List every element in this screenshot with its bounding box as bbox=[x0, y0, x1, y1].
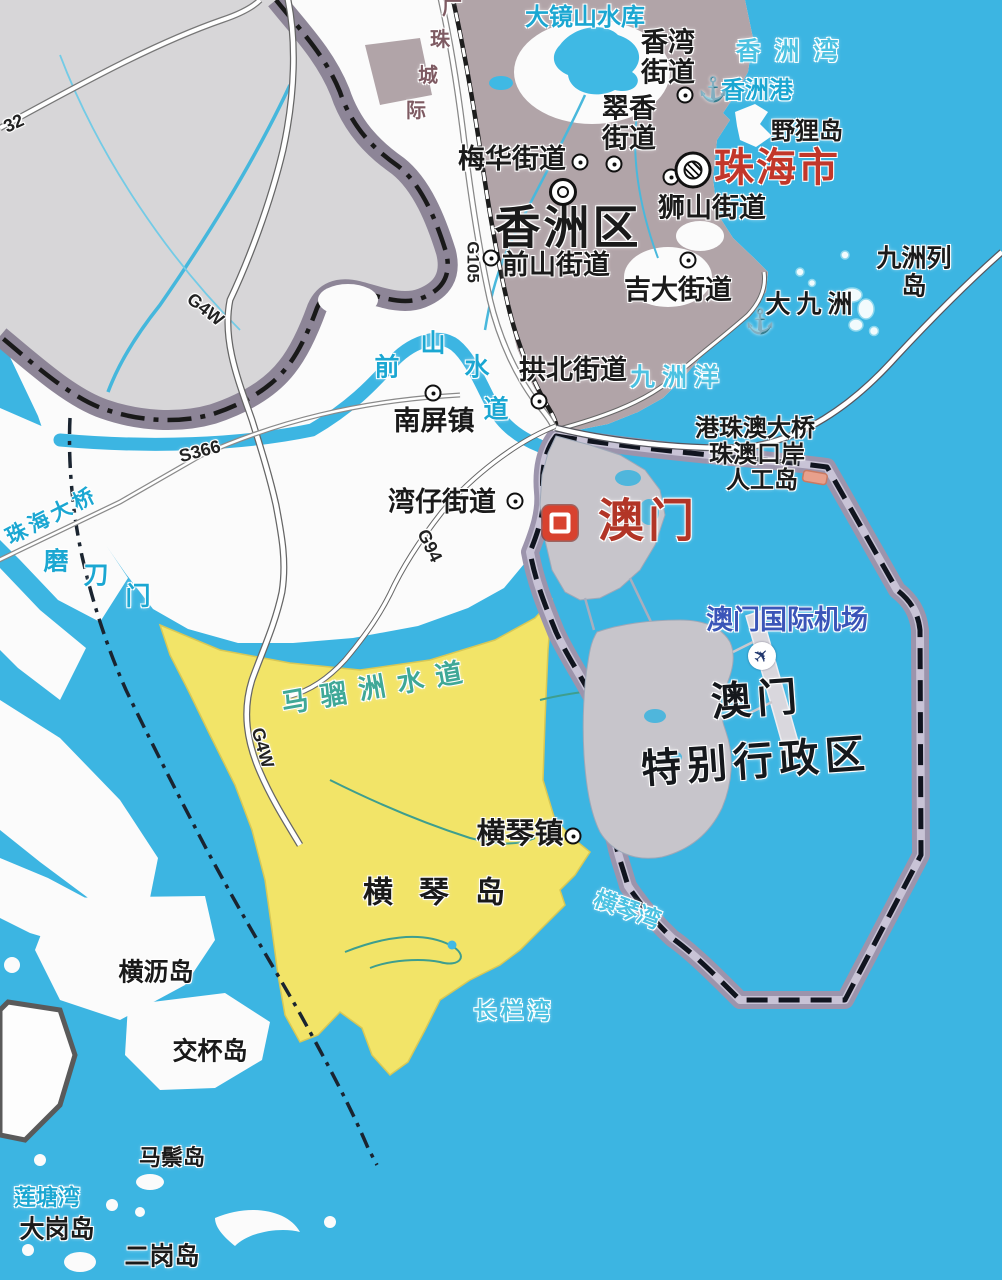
label-xiangzhou-port: 香洲港 bbox=[721, 78, 793, 104]
label-zhuao-port: 珠澳口岸 bbox=[709, 442, 805, 468]
label-artificial-island: 人工岛 bbox=[726, 468, 798, 494]
label-nanping-town: 南屏镇 bbox=[394, 407, 475, 437]
dajiuzhou-islet-4 bbox=[870, 327, 879, 336]
hengqin-pond bbox=[448, 941, 457, 950]
label-road-g105: G105 bbox=[463, 241, 482, 283]
label-zhuhai-city: 珠海市 bbox=[714, 146, 840, 190]
cotai-island bbox=[583, 620, 733, 858]
label-dagang-island: 大岗岛 bbox=[19, 1216, 94, 1244]
label-hengli-island: 横沥岛 bbox=[118, 959, 193, 987]
label-liantang-bay: 莲塘湾 bbox=[14, 1186, 80, 1210]
label-hengqin-town: 横琴镇 bbox=[476, 819, 563, 851]
label-jiuzhou-sea: 九洲洋 bbox=[630, 364, 726, 392]
macau-lake-1 bbox=[615, 470, 641, 486]
mazong-islet-1 bbox=[136, 1174, 164, 1190]
label-macau-airport: 澳门国际机场 bbox=[706, 606, 868, 636]
label-jida-street: 吉大街道 bbox=[624, 276, 732, 306]
anchor-icon-jiuzhou-port: ⚓ bbox=[745, 308, 775, 337]
label-modaomen-char-3: 门 bbox=[125, 583, 150, 611]
label-mazong-island: 马鬃岛 bbox=[139, 1146, 205, 1170]
label-gongbei-street: 拱北街道 bbox=[519, 356, 627, 386]
label-macau: 澳门 bbox=[598, 496, 698, 547]
airport-icon: ✈ bbox=[748, 642, 776, 670]
label-meihua-street: 梅华街道 bbox=[458, 145, 566, 175]
jiuzhou-islet-7 bbox=[841, 251, 849, 259]
macau-capital-icon bbox=[543, 506, 578, 541]
label-shishan-street: 狮山街道 bbox=[658, 194, 766, 224]
label-yeli-island: 野狸岛 bbox=[771, 119, 843, 145]
town-circle-icon-wanzai bbox=[507, 493, 524, 510]
town-circle-icon-hengqin bbox=[565, 828, 582, 845]
label-hzmb-bridge: 港珠澳大桥 bbox=[695, 416, 815, 442]
label-modaomen-char-2: 刀 bbox=[83, 562, 108, 590]
jiuzhou-islet-5 bbox=[796, 268, 804, 276]
anchor-icon-xiangzhou-port: ⚓ bbox=[698, 76, 728, 105]
label-jiaobei-island: 交杯岛 bbox=[172, 1038, 247, 1066]
boundary-white-notch bbox=[318, 284, 378, 316]
mazong-islet-2 bbox=[106, 1199, 118, 1211]
label-xiangwan-street: 香湾 街道 bbox=[641, 28, 695, 87]
label-cuixiang-street: 翠香 街道 bbox=[602, 94, 656, 153]
zhuhai-city-icon bbox=[675, 152, 712, 189]
dajiuzhou-islet-3 bbox=[849, 319, 863, 331]
mazong-islet-3 bbox=[135, 1207, 145, 1217]
map-canvas: 香湾 街道 翠香 街道 梅华街道 狮山街道 香洲区 前山街道 吉大街道 拱北街道… bbox=[0, 0, 1002, 1280]
label-xiangzhou-bay: 香洲湾 bbox=[735, 38, 852, 66]
label-dajingshan-reservoir: 大镜山水库 bbox=[525, 5, 645, 31]
label-dajiuzhou: 大九洲 bbox=[765, 291, 858, 319]
label-wanzai-street: 湾仔街道 bbox=[388, 488, 496, 518]
map-base-layers bbox=[0, 0, 1002, 1280]
label-rail-char-3: 城 bbox=[418, 65, 438, 87]
label-qianshan-waterway-char-1: 前 bbox=[374, 354, 399, 382]
label-ergang-island: 二岗岛 bbox=[124, 1243, 199, 1271]
label-hengqin-island: 横琴岛 bbox=[363, 877, 531, 910]
label-jiuzhou-liedao: 九洲列岛 bbox=[870, 246, 958, 301]
dajiuzhou-islet-2 bbox=[858, 299, 874, 319]
dagang-islet bbox=[64, 1252, 96, 1272]
label-macau-sar-line1: 澳门 bbox=[710, 675, 805, 725]
town-circle-icon-meihua bbox=[572, 154, 589, 171]
label-qianshan-waterway-char-4: 道 bbox=[483, 396, 508, 424]
islet-a bbox=[4, 957, 20, 973]
label-qianshan-waterway-char-2: 山 bbox=[420, 330, 445, 358]
urban-hole-3 bbox=[676, 221, 724, 251]
label-rail-char-1: 广 bbox=[442, 0, 462, 19]
pond-small bbox=[489, 76, 513, 90]
label-rail-char-4: 际 bbox=[406, 100, 426, 122]
town-circle-icon-xiangwan bbox=[677, 87, 694, 104]
label-xiangzhou-district: 香洲区 bbox=[495, 203, 642, 254]
label-qianshan-waterway-char-3: 水 bbox=[464, 354, 489, 382]
district-seat-icon bbox=[549, 178, 577, 206]
town-circle-icon-jida bbox=[680, 252, 697, 269]
cotai-lake-1 bbox=[644, 709, 666, 723]
dagang-islet-2 bbox=[22, 1244, 34, 1256]
plane-glyph: ✈ bbox=[748, 642, 776, 670]
town-circle-icon-qianshan bbox=[483, 250, 500, 267]
label-qianshan-street: 前山街道 bbox=[502, 251, 610, 281]
town-circle-icon-cuixiang bbox=[606, 156, 623, 173]
town-circle-icon-gongbei bbox=[531, 393, 548, 410]
ergang-islet-3 bbox=[324, 1216, 336, 1228]
town-circle-icon-nanping bbox=[425, 385, 442, 402]
label-changlan-bay: 长栏湾 bbox=[474, 998, 555, 1023]
label-modaomen-char-1: 磨 bbox=[43, 548, 68, 576]
islet-b bbox=[34, 1154, 46, 1166]
jiuzhou-islet-6 bbox=[809, 280, 816, 287]
label-rail-char-2: 珠 bbox=[430, 29, 450, 51]
